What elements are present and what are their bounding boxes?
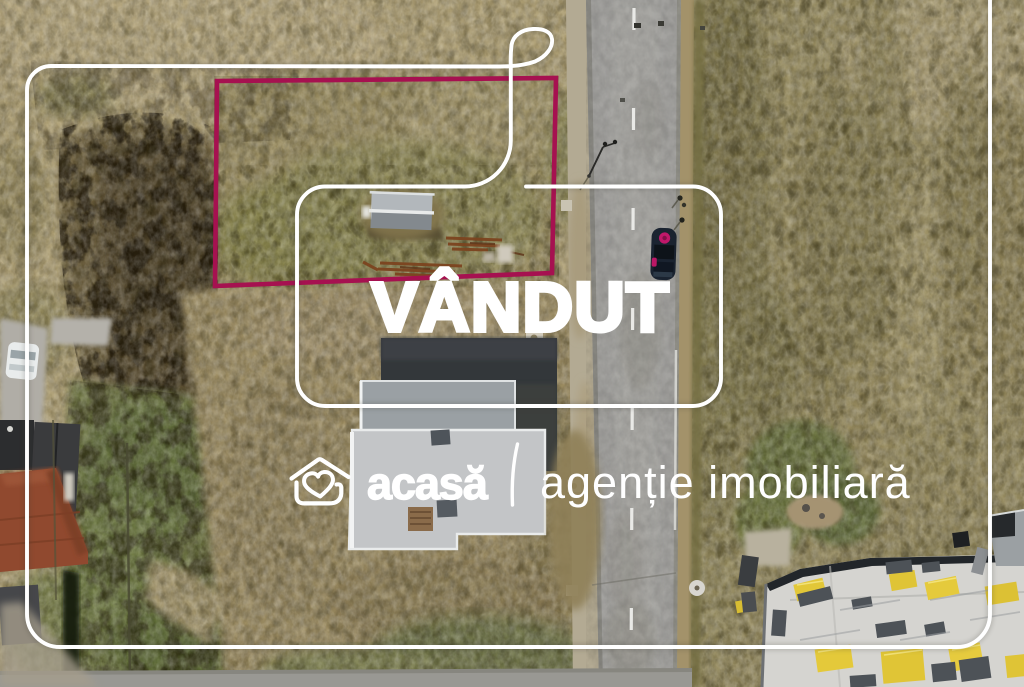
- svg-text:agenție imobiliară: agenție imobiliară: [540, 457, 911, 508]
- svg-text:VÂNDUT: VÂNDUT: [371, 267, 670, 346]
- svg-text:acasă: acasă: [367, 458, 489, 509]
